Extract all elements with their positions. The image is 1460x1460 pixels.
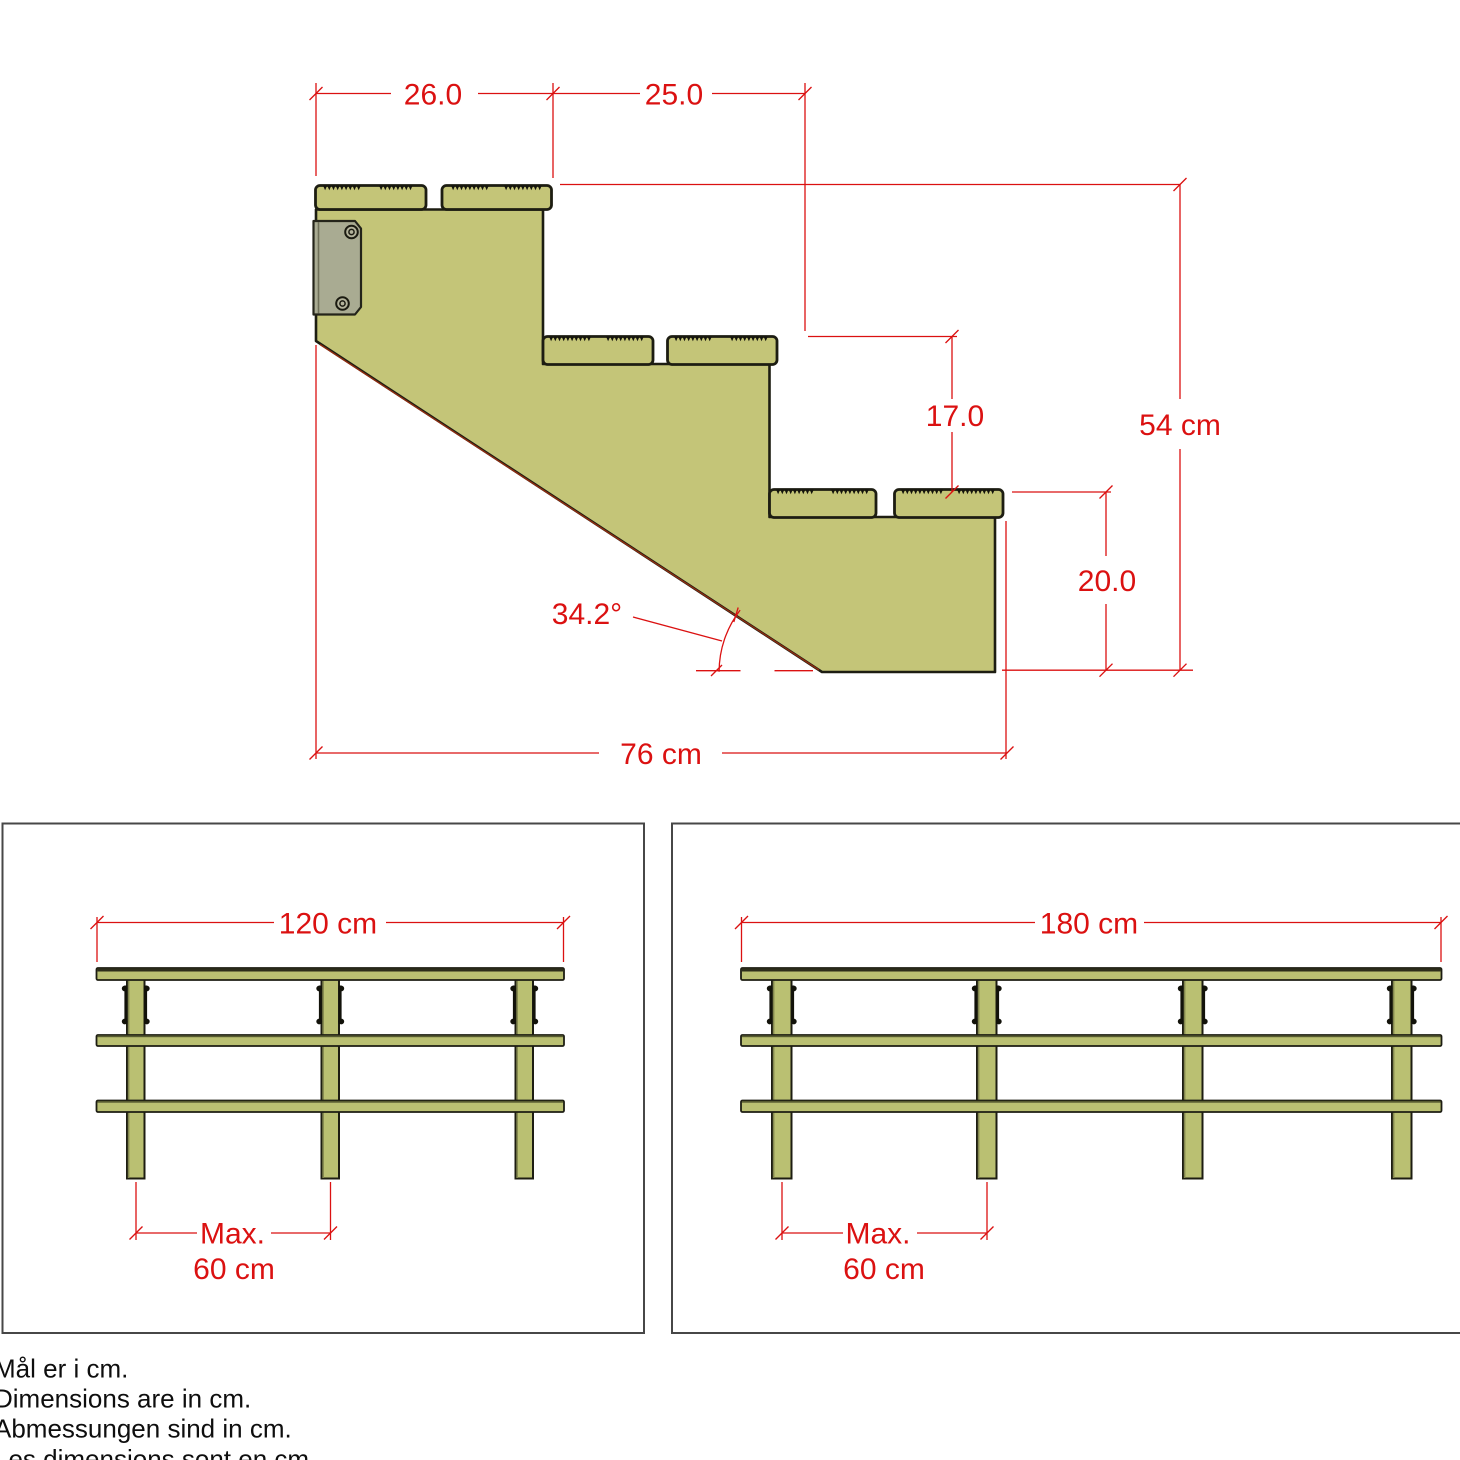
svg-text:20.0: 20.0: [1078, 565, 1136, 598]
svg-text:180 cm: 180 cm: [1040, 908, 1138, 941]
svg-text:Max.: Max.: [845, 1218, 910, 1251]
svg-text:76 cm: 76 cm: [620, 738, 702, 771]
svg-text:60 cm: 60 cm: [843, 1253, 925, 1286]
svg-text:Max.: Max.: [200, 1218, 265, 1251]
svg-text:120 cm: 120 cm: [279, 908, 377, 941]
svg-text:Les dimensions sont en cm.: Les dimensions sont en cm.: [0, 1444, 316, 1460]
svg-text:Dimensions are in cm.: Dimensions are in cm.: [0, 1384, 251, 1414]
svg-text:26.0: 26.0: [404, 79, 462, 112]
svg-text:Mål er i cm.: Mål er i cm.: [0, 1354, 128, 1384]
svg-text:17.0: 17.0: [926, 400, 984, 433]
svg-text:54 cm: 54 cm: [1139, 409, 1221, 442]
svg-text:25.0: 25.0: [645, 79, 703, 112]
svg-text:34.2°: 34.2°: [552, 598, 622, 631]
svg-text:Abmessungen sind in cm.: Abmessungen sind in cm.: [0, 1414, 292, 1444]
svg-text:60 cm: 60 cm: [193, 1253, 275, 1286]
